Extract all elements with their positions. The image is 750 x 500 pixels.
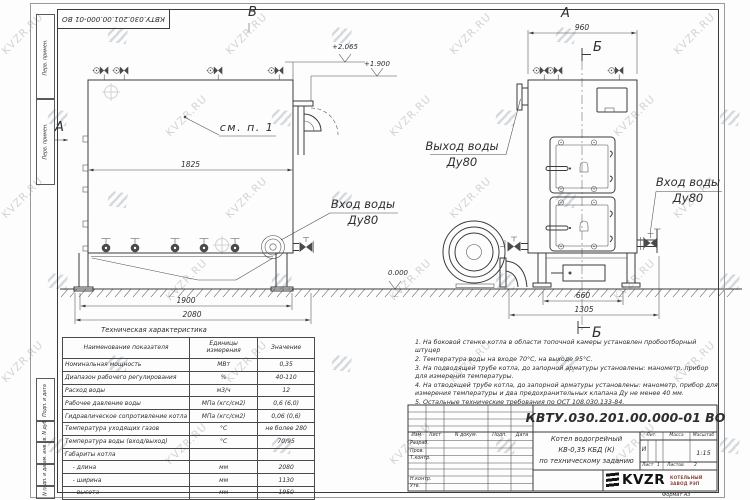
- scale-value: 1:15: [690, 450, 717, 457]
- mass-header: Масса: [663, 434, 690, 439]
- kvzr-logo-bars-icon: [606, 472, 619, 488]
- product-line-2: КВ-0,35 КБД (К): [534, 447, 639, 454]
- tb-col-list: Лист: [426, 434, 444, 439]
- table-row: Рабочее давление водыМПа (кгс/см2)0,6 (6…: [63, 397, 315, 410]
- dim-1825: 1825: [170, 161, 211, 169]
- note-item: 3. На подводящей трубе котла, до запорно…: [415, 365, 719, 380]
- product-line-1: Котел водогрейный: [534, 436, 639, 443]
- outlet-dn: Ду80: [421, 157, 503, 169]
- section-b-top-label: Б: [593, 41, 602, 54]
- margin-box-inv-podl: Инв. N подл.: [36, 485, 55, 499]
- doc-number: КВТУ.030.201.00.000-01 ВО: [534, 405, 717, 432]
- kvzr-logo-text: KVZR: [622, 472, 665, 488]
- top-stamp-text: КВТУ.030.201.00.000-01 ВО: [62, 15, 165, 24]
- note-item: 2. Температура воды на входе 70°С, на вы…: [415, 356, 719, 364]
- spec-header-name: Наименование показателя: [63, 338, 190, 359]
- dim-2080: 2080: [172, 311, 212, 319]
- margin-box-perv-primen-2: Перв. примен.: [36, 98, 55, 185]
- spec-header-row: Наименование показателя Единицы измерени…: [63, 338, 315, 359]
- margin-box-podp-data-2: Подп. и дата: [36, 463, 55, 487]
- table-row: - высотамм1950: [63, 486, 315, 499]
- tb-col-data: Дата: [511, 434, 533, 439]
- elevation-0000: 0.000: [378, 270, 418, 277]
- table-row: Температура воды (вход/выход)°С70/95: [63, 435, 315, 448]
- table-row: Диапазон рабочего регулирования%40-110: [63, 371, 315, 384]
- tb-row-utv: Утв.: [410, 485, 420, 490]
- lit-value: И: [640, 447, 648, 453]
- tb-row-razrab: Разраб.: [410, 442, 429, 447]
- spec-header-units: Единицы измерения: [190, 338, 258, 359]
- note-item: 1. На боковой стенке котла в области топ…: [415, 339, 719, 354]
- outlet-label: Выход воды: [421, 141, 503, 153]
- margin-label: Инв. N дубл.: [43, 420, 48, 443]
- tb-col-izm: Изм.: [408, 434, 426, 439]
- tb-col-podp: Подп.: [488, 434, 511, 439]
- table-row: Температура уходящих газов°Сне более 280: [63, 422, 315, 435]
- margin-label: Взам. инв. N: [43, 441, 48, 465]
- elevation-2065: +2.065: [322, 44, 368, 51]
- sheets-value: 2: [694, 464, 697, 469]
- table-row: - длинамм2080: [63, 461, 315, 474]
- margin-box-vzam-inv: Взам. инв. N: [36, 441, 55, 465]
- margin-box-inv-dubl: Инв. N дубл.: [36, 420, 55, 443]
- section-b-bottom-label: Б: [592, 326, 602, 340]
- drawing-sheet: { "watermark": { "text": "KVZR.RU" }, "f…: [0, 0, 750, 500]
- table-row: Расход водым3/ч12: [63, 384, 315, 397]
- sheet-label: Лист: [642, 464, 653, 469]
- elevation-1900: +1.900: [354, 61, 400, 68]
- margin-label: Перв. примен.: [43, 123, 48, 159]
- product-line-3: по техническому заданию: [534, 458, 639, 465]
- margin-label: Подп. и дата: [43, 384, 48, 417]
- spec-table-title: Техническая характеристика: [62, 327, 246, 334]
- spec-header-value: Значение: [258, 338, 315, 359]
- spec-table: Наименование показателя Единицы измерени…: [62, 337, 315, 500]
- margin-label: Подп. и дата: [43, 463, 48, 487]
- front-inlet-dn: Ду80: [652, 193, 724, 205]
- callout-see-note: см. п. 1: [217, 122, 277, 133]
- format-note: Формат А3: [662, 493, 690, 498]
- table-row: Гидравлическое сопротивление котлаМПа (к…: [63, 410, 315, 423]
- margin-label: Перв. примен.: [43, 39, 48, 75]
- notes-list: 1. На боковой стенке котла в области топ…: [415, 339, 719, 408]
- top-stamp: КВТУ.030.201.00.000-01 ВО: [57, 9, 170, 29]
- front-inlet-label: Вход воды: [652, 177, 724, 189]
- margin-box-podp-data-1: Подп. и дата: [36, 378, 55, 422]
- margin-box-perv-primen-1: Перв. примен.: [36, 14, 55, 100]
- margin-label: Инв. N подл.: [43, 485, 48, 499]
- company-name-line-1: КОТЕЛЬНЫЙ: [670, 475, 718, 480]
- sheets-label: Листов: [667, 464, 684, 469]
- lit-header: Лит.: [640, 434, 663, 439]
- tb-row-tkontr: Т.контр.: [410, 457, 431, 462]
- view-arrow-a-label: А: [55, 121, 64, 134]
- dim-1900: 1900: [166, 297, 206, 305]
- table-row: Габариты котла: [63, 448, 315, 461]
- dim-1305: 1305: [564, 306, 604, 314]
- side-inlet-dn: Ду80: [327, 215, 399, 227]
- dim-960: 960: [562, 24, 602, 32]
- table-row: Номинальная мощностьМВт0,35: [63, 359, 315, 372]
- tb-row-nkontr: Н.контр.: [410, 478, 431, 483]
- table-row: - ширинамм1130: [63, 474, 315, 487]
- tb-col-docnum: N докум.: [444, 434, 488, 439]
- sheet-value: 1: [657, 464, 660, 469]
- dim-660: 660: [563, 292, 603, 300]
- front-view-a-label: А: [561, 7, 570, 20]
- spec-table-body: Номинальная мощностьМВт0,35Диапазон рабо…: [63, 359, 315, 500]
- view-mark-b-label: В: [248, 6, 257, 19]
- side-inlet-label: Вход воды: [327, 199, 399, 211]
- company-name-line-2: ЗАВОД РЭП: [670, 481, 718, 486]
- tb-row-prov: Пров.: [410, 450, 424, 455]
- scale-header: Масштаб: [690, 434, 717, 439]
- note-item: 4. На отводящей трубе котла, до запорной…: [415, 382, 719, 397]
